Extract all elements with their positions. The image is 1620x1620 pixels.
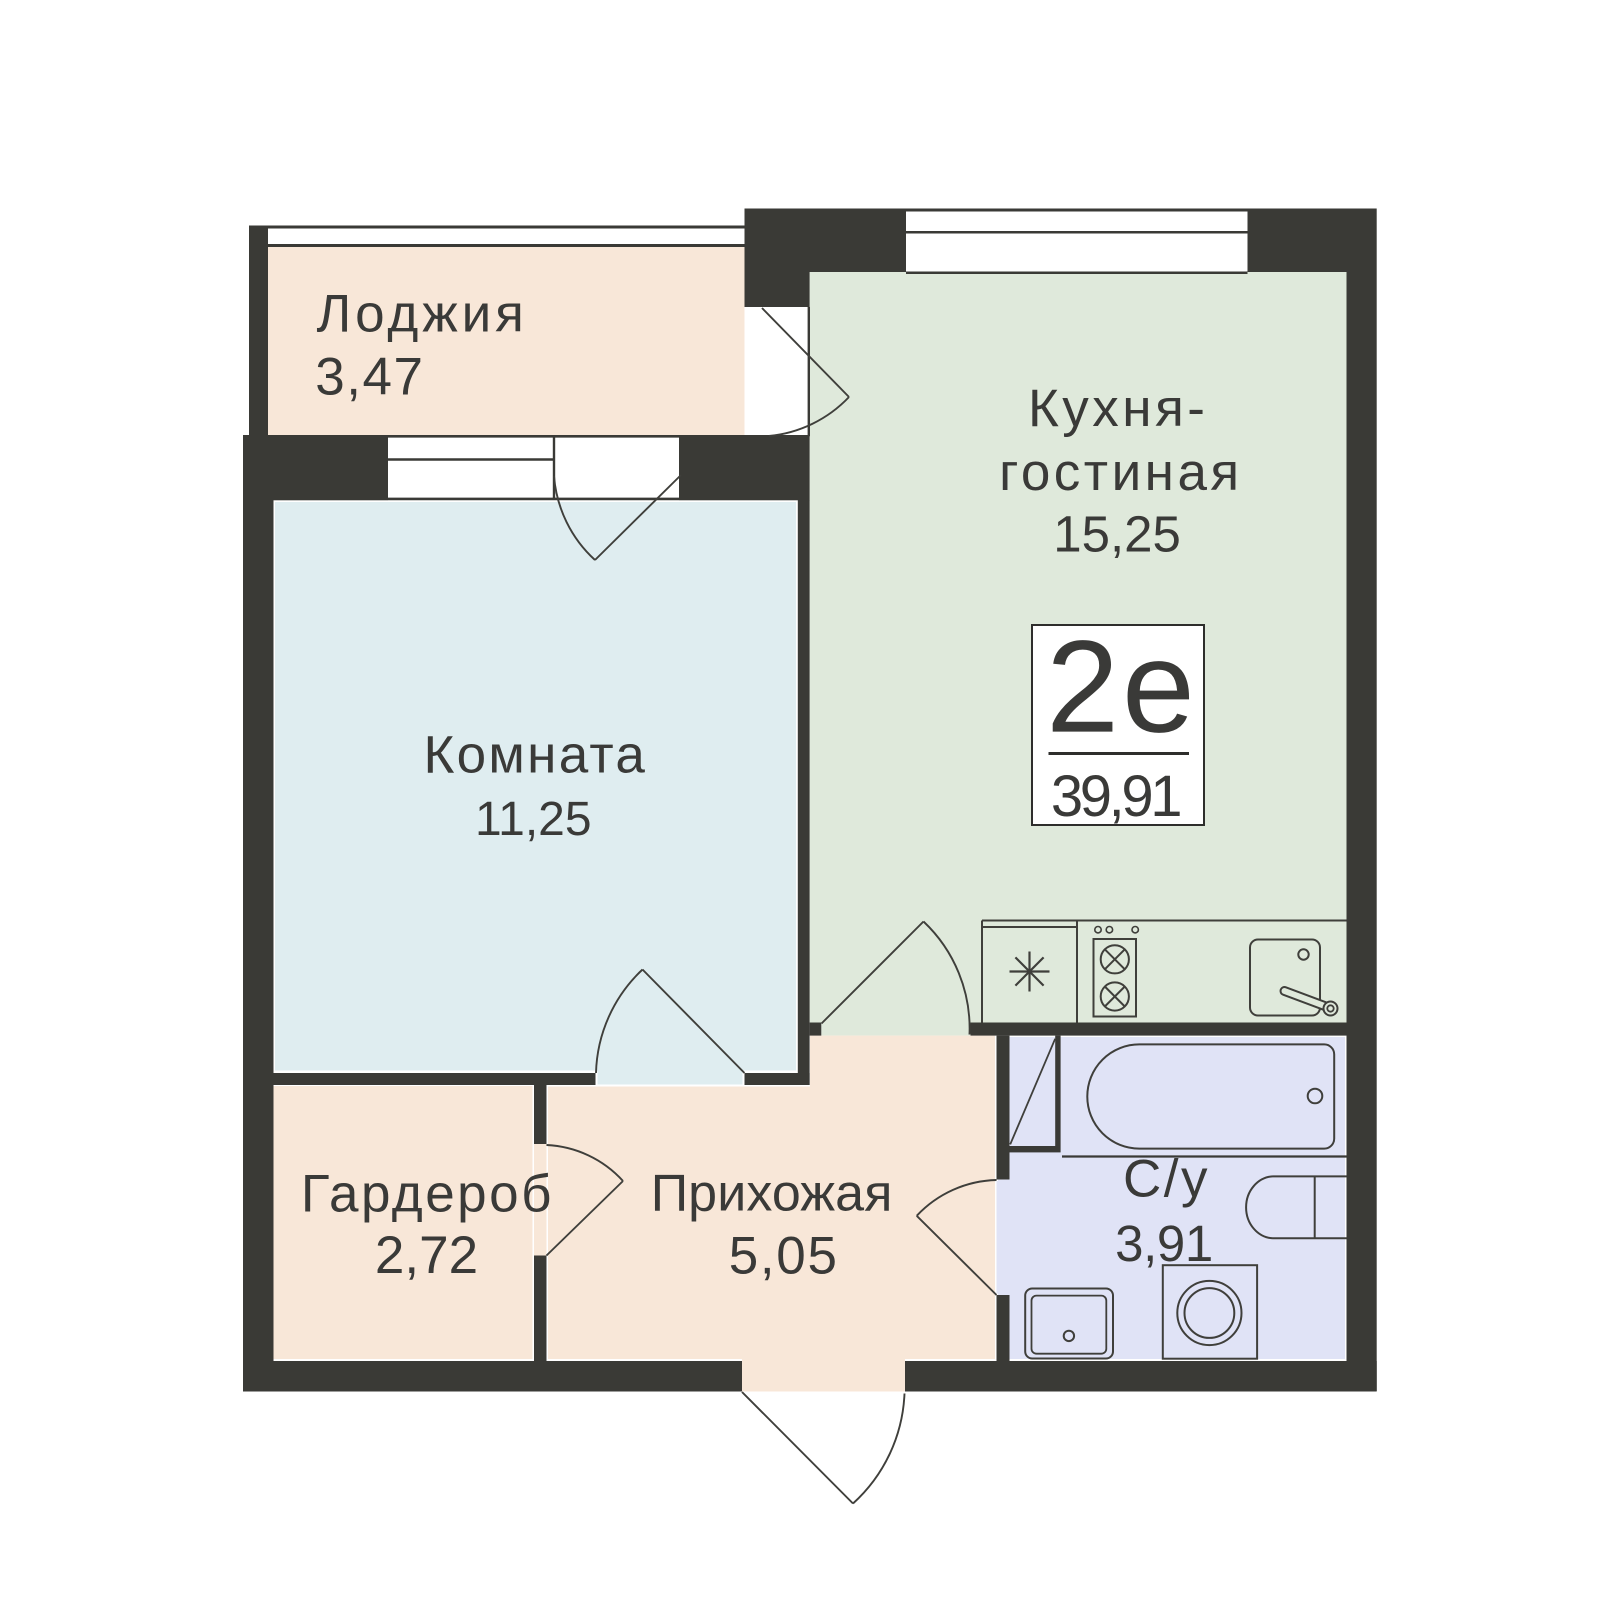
- svg-text:11,25: 11,25: [475, 793, 592, 846]
- svg-text:С/у: С/у: [1123, 1150, 1210, 1209]
- svg-text:гостиная: гостиная: [999, 443, 1242, 502]
- svg-text:39,91: 39,91: [1051, 764, 1180, 829]
- svg-text:2е: 2е: [1046, 613, 1198, 760]
- svg-text:15,25: 15,25: [1053, 505, 1181, 562]
- svg-text:Прихожая: Прихожая: [651, 1165, 893, 1223]
- svg-text:3,47: 3,47: [315, 348, 424, 407]
- svg-text:Кухня-: Кухня-: [1028, 379, 1209, 438]
- svg-text:Лоджия: Лоджия: [317, 284, 528, 343]
- svg-text:Комната: Комната: [423, 725, 647, 784]
- svg-text:3,91: 3,91: [1115, 1215, 1213, 1272]
- svg-text:Гардероб: Гардероб: [301, 1165, 554, 1224]
- svg-text:5,05: 5,05: [729, 1227, 839, 1286]
- svg-text:2,72: 2,72: [375, 1226, 478, 1285]
